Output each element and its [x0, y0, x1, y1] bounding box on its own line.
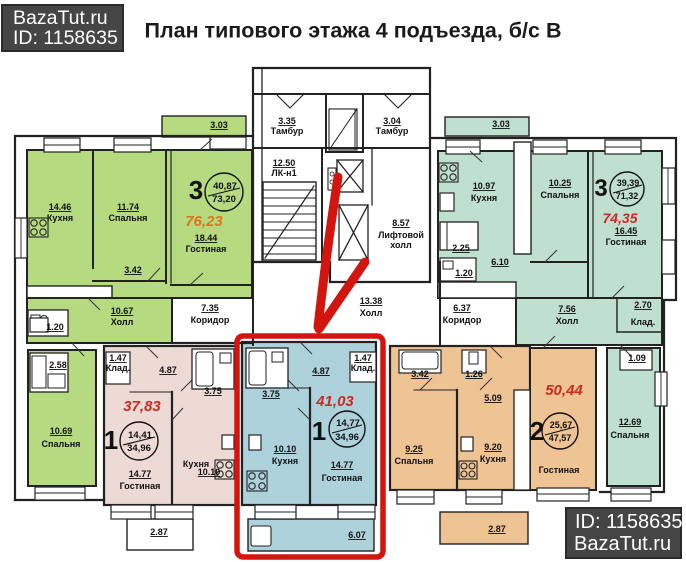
svg-text:холл: холл: [390, 240, 412, 250]
svg-text:10.69: 10.69: [50, 426, 73, 436]
svg-text:3.75: 3.75: [204, 386, 222, 396]
svg-text:Спальня: Спальня: [395, 456, 434, 466]
svg-text:2.70: 2.70: [634, 300, 652, 310]
svg-text:BazaTut.ru: BazaTut.ru: [13, 7, 108, 29]
svg-text:40,87: 40,87: [213, 181, 237, 192]
svg-text:12.69: 12.69: [619, 417, 642, 427]
svg-text:71,32: 71,32: [616, 191, 639, 201]
svg-text:1.09: 1.09: [628, 353, 646, 363]
svg-text:Спальня: Спальня: [541, 190, 580, 200]
svg-text:Гостиная: Гостиная: [322, 473, 363, 483]
svg-text:Клад.: Клад.: [631, 317, 655, 327]
svg-text:10.97: 10.97: [473, 181, 496, 191]
svg-text:10.10: 10.10: [274, 444, 297, 454]
svg-text:11.74: 11.74: [117, 202, 139, 212]
svg-text:2.58: 2.58: [49, 360, 67, 370]
svg-text:Тамбур: Тамбур: [376, 126, 409, 136]
svg-text:9.20: 9.20: [484, 442, 502, 452]
svg-text:7.56: 7.56: [558, 304, 576, 314]
svg-text:1.47: 1.47: [109, 353, 127, 363]
svg-text:4.87: 4.87: [312, 366, 330, 376]
svg-text:Гостиная: Гостиная: [186, 244, 227, 254]
svg-text:Холл: Холл: [360, 308, 383, 318]
svg-text:6.10: 6.10: [491, 257, 509, 267]
svg-text:5.09: 5.09: [484, 393, 502, 403]
svg-text:3.03: 3.03: [492, 119, 510, 129]
svg-text:1.20: 1.20: [455, 268, 473, 278]
svg-text:Гостиная: Гостиная: [539, 465, 580, 475]
svg-text:Гостиная: Гостиная: [606, 237, 647, 247]
svg-text:25,67: 25,67: [550, 420, 573, 430]
svg-text:3.04: 3.04: [383, 116, 401, 126]
svg-text:2.87: 2.87: [488, 524, 506, 534]
svg-text:3.42: 3.42: [124, 265, 142, 275]
svg-text:8.57: 8.57: [392, 218, 410, 228]
svg-text:18.44: 18.44: [195, 233, 218, 243]
svg-text:47,57: 47,57: [549, 433, 572, 443]
svg-text:Тамбур: Тамбур: [271, 126, 304, 136]
svg-text:50,44: 50,44: [545, 382, 583, 399]
svg-text:9.25: 9.25: [405, 444, 423, 454]
svg-text:План типового этажа 4 подъезда: План типового этажа 4 подъезда, б/с В: [145, 19, 562, 43]
svg-text:76,23: 76,23: [185, 213, 223, 230]
svg-text:3.42: 3.42: [411, 369, 429, 379]
svg-text:Коридор: Коридор: [443, 315, 482, 325]
svg-text:3.75: 3.75: [262, 389, 280, 399]
svg-text:1.20: 1.20: [46, 322, 64, 332]
svg-text:13.38: 13.38: [360, 296, 383, 306]
svg-text:39,39: 39,39: [617, 178, 640, 188]
svg-text:3: 3: [594, 175, 607, 202]
svg-text:3.03: 3.03: [210, 120, 228, 130]
svg-text:10.10: 10.10: [198, 467, 221, 477]
svg-text:10.67: 10.67: [111, 306, 134, 316]
svg-text:Гостиная: Гостиная: [120, 481, 161, 491]
svg-text:Клад.: Клад.: [106, 363, 130, 373]
svg-text:2.87: 2.87: [150, 527, 168, 537]
svg-text:16.45: 16.45: [615, 226, 638, 236]
svg-text:Холл: Холл: [111, 317, 134, 327]
svg-text:3.35: 3.35: [278, 116, 296, 126]
svg-text:4.87: 4.87: [159, 365, 177, 375]
svg-text:Спальня: Спальня: [109, 213, 148, 223]
svg-text:14.77: 14.77: [331, 460, 354, 470]
svg-text:37,83: 37,83: [123, 398, 161, 415]
svg-text:34,96: 34,96: [127, 443, 151, 454]
svg-text:1.47: 1.47: [354, 353, 372, 363]
svg-text:1: 1: [104, 425, 118, 455]
svg-text:3: 3: [189, 175, 203, 205]
svg-text:41,03: 41,03: [315, 393, 354, 410]
svg-text:14.46: 14.46: [49, 202, 72, 212]
svg-text:14,77: 14,77: [336, 418, 360, 429]
svg-text:Клад.: Клад.: [351, 363, 375, 373]
svg-text:7.35: 7.35: [201, 303, 219, 313]
svg-text:12.50: 12.50: [273, 158, 296, 168]
svg-text:1.26: 1.26: [465, 369, 483, 379]
svg-text:Холл: Холл: [556, 316, 579, 326]
svg-text:ЛК-н1: ЛК-н1: [271, 168, 296, 178]
svg-text:Спальня: Спальня: [611, 430, 650, 440]
svg-text:Кухня: Кухня: [47, 213, 73, 223]
svg-text:10.25: 10.25: [549, 178, 572, 188]
svg-text:74,35: 74,35: [602, 210, 637, 226]
svg-text:34,96: 34,96: [335, 432, 359, 443]
svg-text:Коридор: Коридор: [191, 315, 230, 325]
svg-text:1: 1: [312, 416, 326, 446]
svg-text:2.25: 2.25: [452, 243, 470, 253]
svg-text:Лифтовой: Лифтовой: [378, 230, 424, 240]
svg-text:ID: 1158635: ID: 1158635: [575, 511, 683, 533]
svg-text:Кухня: Кухня: [471, 193, 497, 203]
svg-text:ID: 1158635: ID: 1158635: [13, 27, 118, 49]
svg-text:6.37: 6.37: [453, 303, 471, 313]
svg-text:73,20: 73,20: [212, 194, 236, 205]
svg-text:BazaTut.ru: BazaTut.ru: [574, 533, 671, 555]
svg-text:Кухня: Кухня: [272, 456, 298, 466]
svg-text:Спальня: Спальня: [42, 439, 81, 449]
svg-text:14.77: 14.77: [129, 469, 152, 479]
svg-text:6.07: 6.07: [348, 530, 366, 540]
svg-text:14,41: 14,41: [128, 430, 152, 441]
svg-text:Кухня: Кухня: [480, 454, 506, 464]
